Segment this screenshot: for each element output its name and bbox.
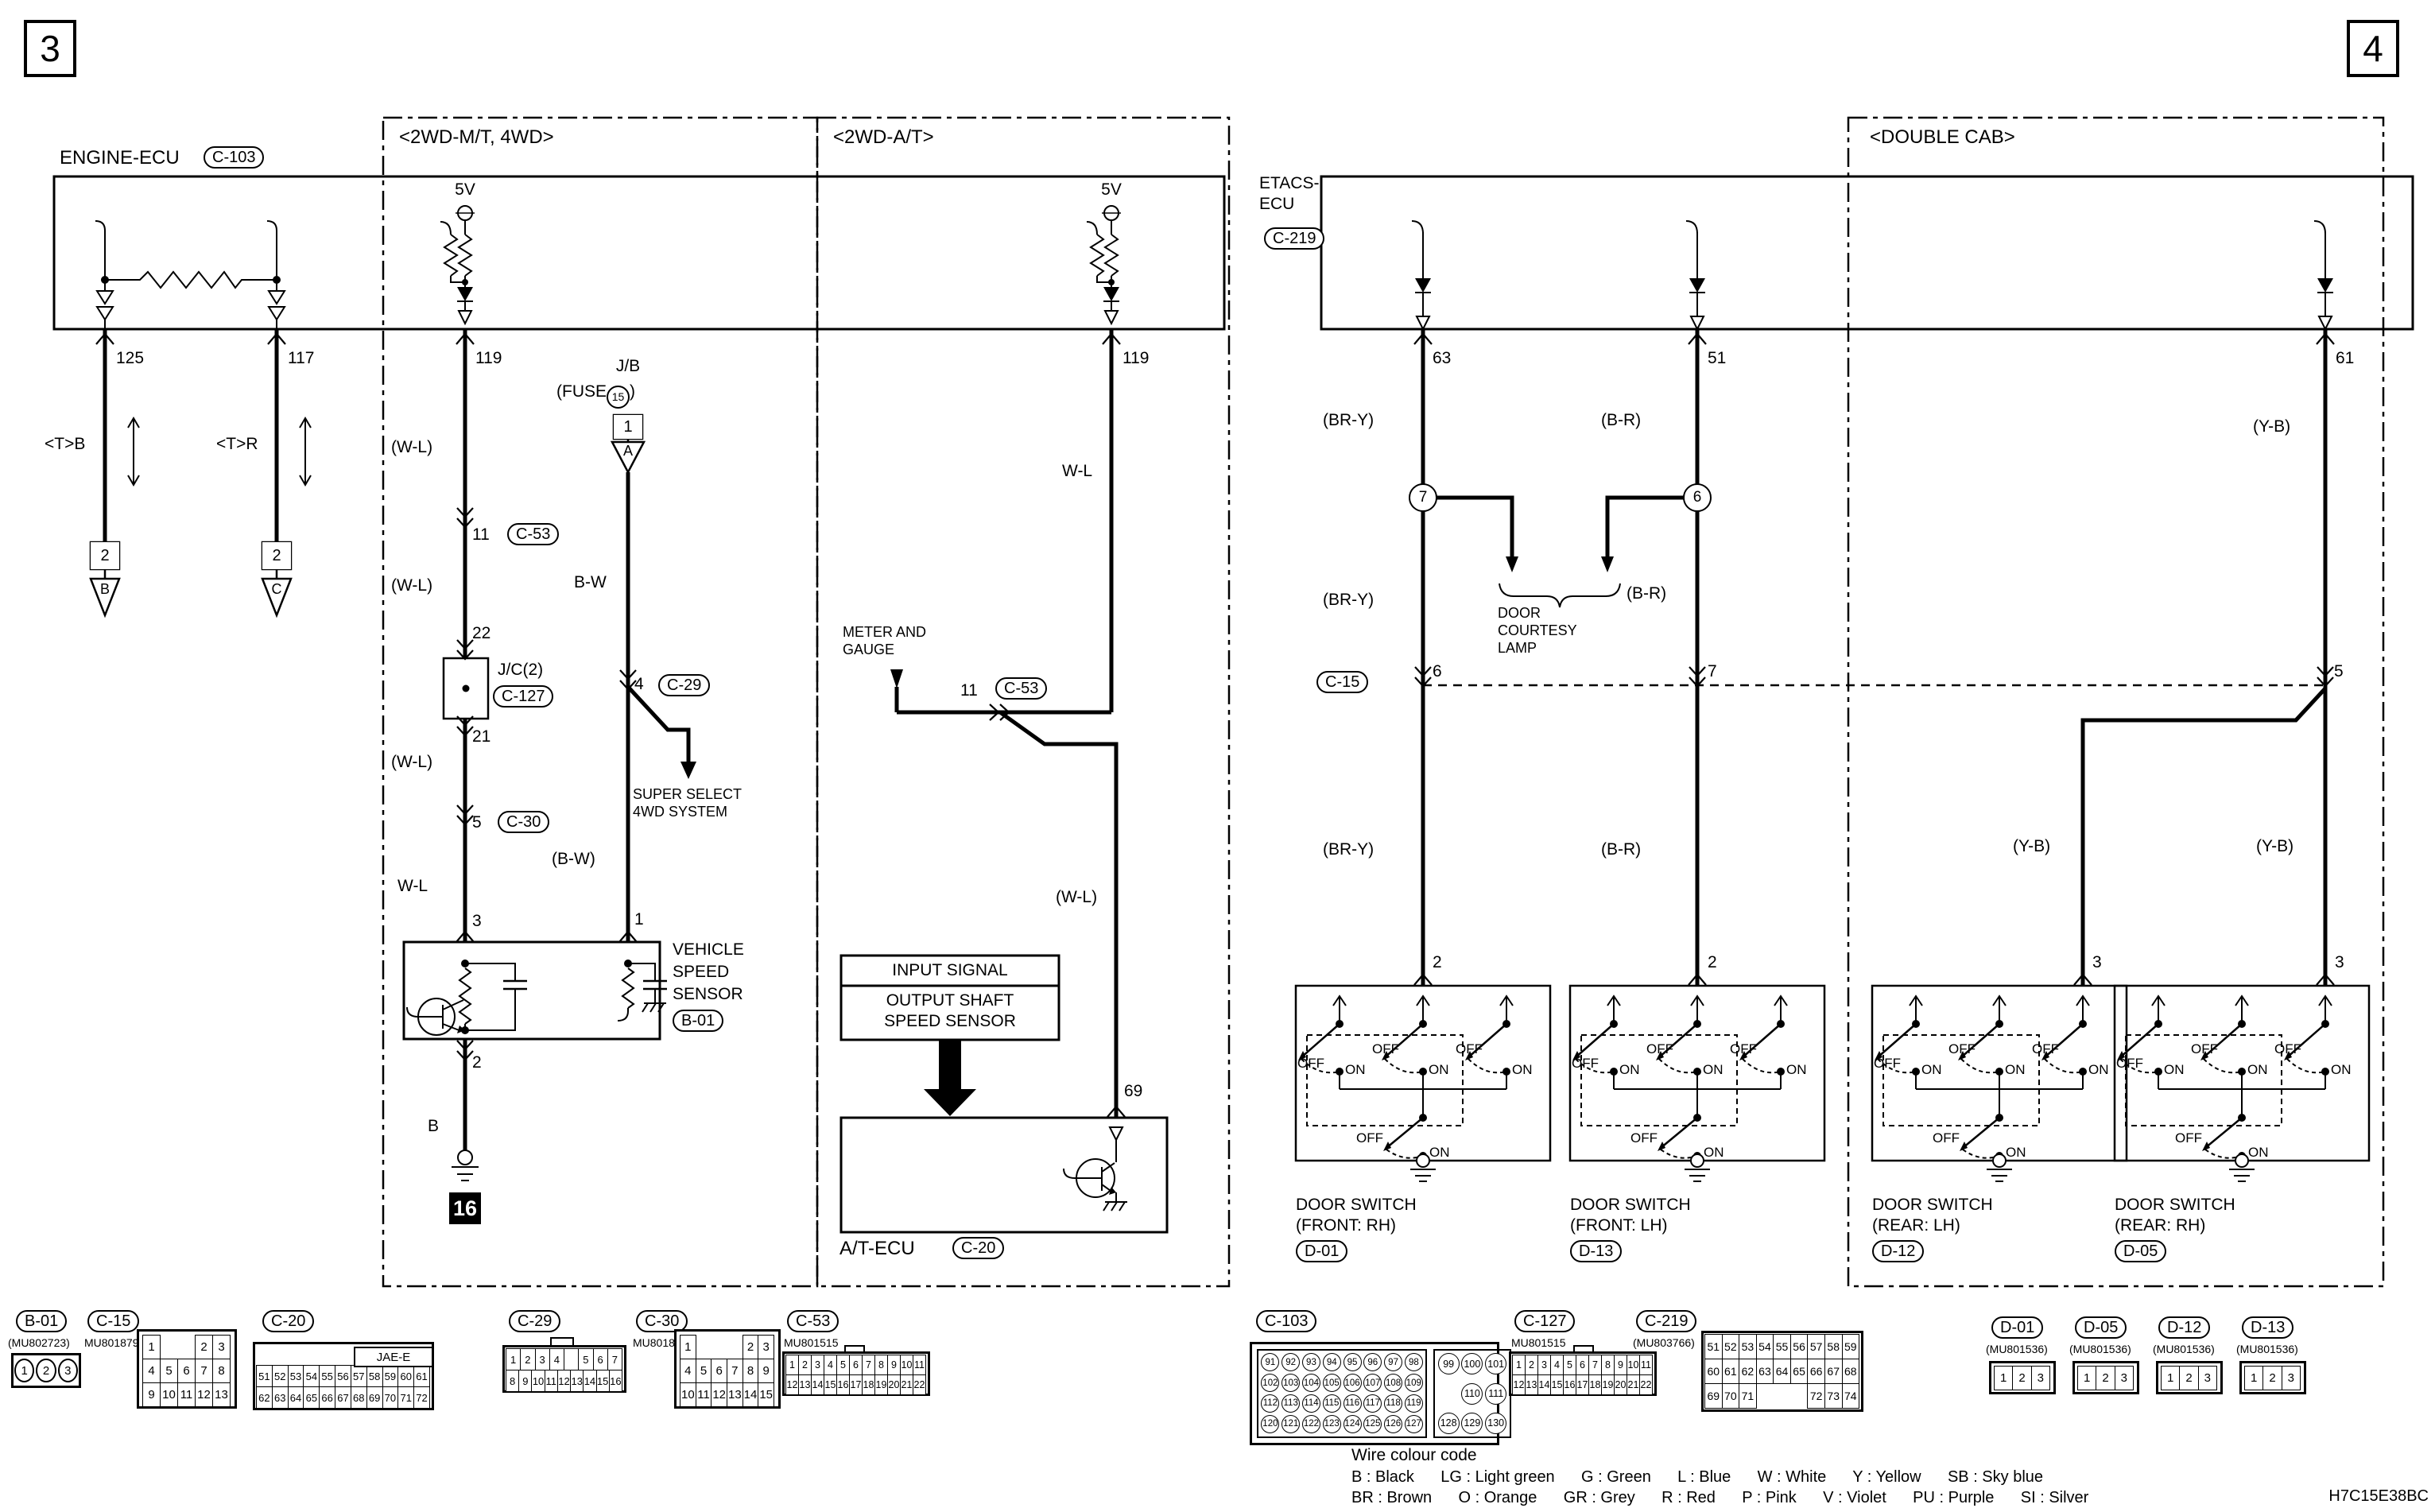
pin: 2 <box>36 1359 56 1382</box>
atecu-title: A/T-ECU <box>839 1239 915 1258</box>
pin: 117 <box>1363 1394 1382 1413</box>
pin: 71 <box>397 1386 414 1409</box>
section-at-label: <2WD-A/T> <box>833 127 934 147</box>
pin: 2 <box>743 1335 759 1359</box>
pin: 55 <box>1773 1334 1791 1359</box>
pin: 22 <box>1639 1374 1653 1395</box>
pin: 13 <box>212 1382 231 1407</box>
on-label: ON <box>1921 1062 1942 1078</box>
tr-label: <T>R <box>216 436 258 453</box>
pin: 4 <box>549 1348 564 1370</box>
input-signal-label: INPUT SIGNAL <box>892 962 1007 979</box>
conn-c127-badge: C-127 <box>1514 1310 1575 1332</box>
off-label: OFF <box>2274 1041 2301 1057</box>
jb-c29-badge: C-29 <box>658 674 710 696</box>
pin: 20 <box>887 1374 901 1395</box>
conn-d01-badge: D-01 <box>1991 1316 2043 1339</box>
on-label: ON <box>1786 1062 1807 1078</box>
pin: 4 <box>1550 1355 1564 1375</box>
pin: 108 <box>1384 1374 1402 1392</box>
pin: 5 <box>836 1355 850 1375</box>
pin: 12 <box>785 1374 799 1395</box>
lamp-label-2: COURTESY <box>1498 623 1577 638</box>
pin: 14 <box>1537 1374 1551 1395</box>
pin: 13 <box>570 1370 584 1392</box>
ds3-caption-1: DOOR SWITCH <box>1872 1196 1993 1214</box>
ds2-caption-2: (FRONT: LH) <box>1570 1217 1668 1235</box>
conn-c103-right-block: 99100101 110111 128129130 <box>1433 1349 1510 1438</box>
pin: 16 <box>609 1370 622 1392</box>
pin: 59 <box>1842 1334 1860 1359</box>
at-wl: W-L <box>1062 463 1092 480</box>
pin: 13 <box>1525 1374 1538 1395</box>
pin: 16 <box>836 1374 850 1395</box>
pin: 68 <box>1842 1359 1860 1384</box>
pin: 110 <box>1461 1383 1483 1405</box>
pin: 10 <box>680 1382 696 1407</box>
pin: 17 <box>1576 1374 1589 1395</box>
pin: 12 <box>195 1382 213 1407</box>
pin: 70 <box>1722 1383 1740 1409</box>
br-3: (B-R) <box>1601 841 1641 859</box>
legend-line-2: BR : Brown O : Orange GR : Grey R : Red … <box>1351 1490 2088 1506</box>
conn-c127-pinout: 1234567891011 1213141516171819202122 <box>1509 1351 1657 1396</box>
pin: 91 <box>1261 1353 1279 1371</box>
yb-3: (Y-B) <box>2256 838 2293 855</box>
yb-1: (Y-B) <box>2253 418 2290 436</box>
pin: 65 <box>1790 1359 1809 1384</box>
pin: 70 <box>382 1386 399 1409</box>
jb-bw-label: B-W <box>574 574 607 591</box>
pin: 6 <box>849 1355 863 1375</box>
pin: 5 <box>578 1348 593 1370</box>
etacs-title-1: ETACS- <box>1259 175 1319 192</box>
pin: 21 <box>1627 1374 1640 1395</box>
pin: 61 <box>1722 1359 1740 1384</box>
door-switch-front-lh: OFFON OFFON OFFON OFFON <box>1570 986 1824 1161</box>
pin: 72 <box>413 1386 430 1409</box>
pin: 63 <box>1756 1359 1774 1384</box>
ref-box-2c: 2 <box>262 542 291 569</box>
pin: 9 <box>758 1359 774 1383</box>
ds1-caption-2: (FRONT: RH) <box>1296 1217 1396 1235</box>
pin: 103 <box>1281 1374 1300 1392</box>
pin: 112 <box>1261 1394 1279 1413</box>
pin: 72 <box>1807 1383 1825 1409</box>
pin: 2 <box>2179 1366 2198 1390</box>
ds4-pin-3: 3 <box>2335 954 2344 971</box>
vss-b01-badge: B-01 <box>673 1010 723 1032</box>
pin: 6 <box>177 1359 196 1383</box>
pin: 67 <box>1824 1359 1843 1384</box>
conn-d13-pinout: 123 <box>2239 1361 2306 1394</box>
drawing-code: H7C15E38BC <box>2290 1488 2429 1505</box>
pin: 1 <box>506 1348 521 1370</box>
pin: 56 <box>335 1365 351 1387</box>
vss-label-2: SPEED <box>673 963 729 981</box>
pin: 4 <box>142 1359 161 1383</box>
pin: 2 <box>1525 1355 1538 1375</box>
bry-2: (BR-Y) <box>1323 591 1374 609</box>
conn-d12-badge: D-12 <box>2158 1316 2210 1339</box>
pin: 69 <box>1704 1383 1723 1409</box>
bry-3: (BR-Y) <box>1323 841 1374 859</box>
ds1-pin-2: 2 <box>1433 954 1442 971</box>
off-label: OFF <box>1456 1041 1483 1057</box>
conn-c53-part: MU801515 <box>784 1337 839 1349</box>
pin: 99 <box>1438 1353 1460 1374</box>
pin: 130 <box>1485 1413 1506 1434</box>
conn-c20-pinout: JAE-E 5152535455565758596061 62636465666… <box>253 1342 434 1410</box>
on-label: ON <box>1704 1145 1724 1161</box>
ds4-caption-1: DOOR SWITCH <box>2115 1196 2235 1214</box>
mt-wl-1: (W-L) <box>391 439 432 456</box>
tb-label: <T>B <box>45 436 85 453</box>
page-number-right: 4 <box>2347 20 2399 77</box>
pin: 21 <box>900 1374 913 1395</box>
jc-label: J/C(2) <box>498 661 543 679</box>
pin: 95 <box>1344 1353 1362 1371</box>
junction-6: 6 <box>1683 483 1712 512</box>
pin: 100 <box>1461 1353 1483 1374</box>
conn-c103-pinout: 9192939495969798 10210310410510610710810… <box>1250 1342 1499 1445</box>
conn-b01-pinout: 123 <box>11 1353 81 1388</box>
atecu-c20-badge: C-20 <box>952 1237 1004 1259</box>
pin: 6 <box>711 1359 727 1383</box>
engine-ecu-title: ENGINE-ECU <box>60 148 180 168</box>
mt-pin-5: 5 <box>472 814 482 832</box>
ds3-pin-3: 3 <box>2092 954 2102 971</box>
pin: 10 <box>160 1382 178 1407</box>
pin: 118 <box>1384 1394 1402 1413</box>
pin: 11 <box>177 1382 196 1407</box>
pin: 11 <box>545 1370 558 1392</box>
off-label: OFF <box>1730 1041 1757 1057</box>
pin: 128 <box>1438 1413 1460 1434</box>
pin: 8 <box>1601 1355 1615 1375</box>
pin: 65 <box>303 1386 320 1409</box>
door-switch-rear-lh: OFFON OFFON OFFON OFFON <box>1872 986 2127 1161</box>
engine-ecu-connector-badge: C-103 <box>204 146 264 169</box>
off-label: OFF <box>1874 1056 1901 1072</box>
pin: 122 <box>1302 1415 1320 1433</box>
mt-pin-11: 11 <box>472 526 490 544</box>
pin: 14 <box>743 1382 759 1407</box>
pin: 111 <box>1485 1383 1506 1405</box>
jc-c127-badge: C-127 <box>493 685 553 708</box>
mt-wl-2: (W-L) <box>391 577 432 595</box>
pin: 19 <box>874 1374 888 1395</box>
pin: 3 <box>212 1335 231 1359</box>
pin: 2 <box>195 1335 213 1359</box>
mt-b-label: B <box>428 1118 439 1135</box>
pin: 129 <box>1461 1413 1483 1434</box>
pin: 74 <box>1842 1383 1860 1409</box>
output-shaft-label-2: SPEED SENSOR <box>884 1013 1016 1030</box>
etacs-title-2: ECU <box>1259 196 1294 213</box>
pin: 55 <box>319 1365 335 1387</box>
ds1-badge: D-01 <box>1296 1240 1347 1262</box>
pin: 68 <box>351 1386 367 1409</box>
pin: 101 <box>1485 1353 1506 1374</box>
pin: 1 <box>14 1359 34 1382</box>
pin: 92 <box>1281 1353 1300 1371</box>
ds2-pin-2: 2 <box>1708 954 1717 971</box>
pin: 3 <box>58 1359 78 1382</box>
super-select-1: SUPER SELECT <box>633 787 742 802</box>
pin: 7 <box>727 1359 743 1383</box>
pin: 3 <box>535 1348 550 1370</box>
lamp-label-3: LAMP <box>1498 641 1537 656</box>
on-label: ON <box>2247 1062 2268 1078</box>
pin: 13 <box>727 1382 743 1407</box>
pin-125: 125 <box>116 350 144 367</box>
conn-d12-part: (MU801536) <box>2153 1343 2215 1355</box>
conn-c219-badge: C-219 <box>1636 1310 1696 1332</box>
off-label: OFF <box>2116 1056 2143 1072</box>
output-shaft-label-1: OUTPUT SHAFT <box>886 992 1014 1010</box>
pin: 7 <box>607 1348 622 1370</box>
br-1: (B-R) <box>1601 412 1641 429</box>
pin: 6 <box>1576 1355 1589 1375</box>
pin: 94 <box>1323 1353 1341 1371</box>
pin: 73 <box>1824 1383 1843 1409</box>
conn-d05-part: (MU801536) <box>2069 1343 2131 1355</box>
conn-c15-part: MU801879 <box>84 1337 139 1349</box>
ds3-badge: D-12 <box>1872 1240 1924 1262</box>
pin: 52 <box>272 1365 289 1387</box>
pin: 102 <box>1261 1374 1279 1392</box>
mt-5v-label: 5V <box>455 181 475 199</box>
pin: 11 <box>696 1382 712 1407</box>
conn-c30-pinout: 123 456789 101112131415 <box>674 1329 781 1409</box>
pin: 7 <box>862 1355 875 1375</box>
pin: 51 <box>256 1365 273 1387</box>
pin: 64 <box>288 1386 304 1409</box>
conn-d13-badge: D-13 <box>2242 1316 2293 1339</box>
fuse-post: ) <box>630 382 635 401</box>
pin: 3 <box>811 1355 824 1375</box>
pin: 1 <box>785 1355 799 1375</box>
pin: 120 <box>1261 1415 1279 1433</box>
pin: 93 <box>1302 1353 1320 1371</box>
pin: 2 <box>2262 1366 2282 1390</box>
off-label: OFF <box>1356 1130 1383 1146</box>
pin: 11 <box>1639 1355 1653 1375</box>
pin: 121 <box>1281 1415 1300 1433</box>
pin: 97 <box>1384 1353 1402 1371</box>
yb-2: (Y-B) <box>2013 838 2050 855</box>
pin: 9 <box>142 1382 161 1407</box>
ds3-caption-2: (REAR: LH) <box>1872 1217 1960 1235</box>
pin: 62 <box>1739 1359 1757 1384</box>
on-label: ON <box>2331 1062 2352 1078</box>
conn-c53-pinout: 1234567891011 1213141516171819202122 <box>782 1351 930 1396</box>
jb-fuse-label: (FUSE15) <box>556 383 635 409</box>
pin: 13 <box>798 1374 812 1395</box>
pin: 3 <box>2282 1366 2301 1390</box>
door-switch-rear-rh: OFFON OFFON OFFON OFFON <box>2115 986 2369 1161</box>
off-label: OFF <box>1948 1041 1976 1057</box>
pin: 15 <box>758 1382 774 1407</box>
on-label: ON <box>2088 1062 2109 1078</box>
off-label: OFF <box>1630 1130 1658 1146</box>
ds4-badge: D-05 <box>2115 1240 2166 1262</box>
pin: 64 <box>1773 1359 1791 1384</box>
jb-label: J/B <box>616 358 640 375</box>
super-select-2: 4WD SYSTEM <box>633 804 727 820</box>
lamp-label-1: DOOR <box>1498 606 1541 621</box>
pin: 3 <box>1537 1355 1551 1375</box>
pin-117: 117 <box>288 350 314 367</box>
pin: 58 <box>366 1365 383 1387</box>
junction-7: 7 <box>1409 483 1437 512</box>
pin: 2 <box>520 1348 535 1370</box>
pin: 54 <box>1756 1334 1774 1359</box>
pin: 7 <box>1588 1355 1602 1375</box>
meter-label-1: METER AND <box>843 625 926 640</box>
pin: 51 <box>1704 1334 1723 1359</box>
ds2-badge: D-13 <box>1570 1240 1622 1262</box>
pin: 1 <box>2077 1366 2096 1390</box>
at-pin-119: 119 <box>1123 350 1149 367</box>
pin: 9 <box>887 1355 901 1375</box>
on-label: ON <box>2005 1062 2026 1078</box>
pin: 3 <box>758 1335 774 1359</box>
pin: 53 <box>1739 1334 1757 1359</box>
fuse-pre: (FUSE <box>556 382 607 401</box>
pin: 116 <box>1344 1394 1362 1413</box>
pin: 3 <box>2031 1366 2050 1390</box>
conn-c127-part: MU801515 <box>1511 1337 1566 1349</box>
legend-line-1: B : Black LG : Light green G : Green L :… <box>1351 1469 2043 1486</box>
pin: 8 <box>743 1359 759 1383</box>
mt-wl-3: (W-L) <box>391 754 432 771</box>
on-label: ON <box>2006 1145 2026 1161</box>
pin: 11 <box>913 1355 926 1375</box>
on-label: ON <box>1703 1062 1723 1078</box>
pin: 20 <box>1614 1374 1627 1395</box>
pin: 9 <box>518 1370 532 1392</box>
on-label: ON <box>1345 1062 1366 1078</box>
pin <box>564 1348 579 1370</box>
pin: 19 <box>1601 1374 1615 1395</box>
pin: 15 <box>824 1374 837 1395</box>
pin: 113 <box>1281 1394 1300 1413</box>
pin: 123 <box>1323 1415 1341 1433</box>
pin: 6 <box>593 1348 608 1370</box>
pin: 69 <box>366 1386 383 1409</box>
section-mt-label: <2WD-M/T, 4WD> <box>399 127 554 147</box>
conn-c219-pinout: 515253545556575859 606162636465666768 69… <box>1701 1331 1863 1412</box>
pin: 119 <box>1405 1394 1423 1413</box>
bry-1: (BR-Y) <box>1323 412 1374 429</box>
conn-d01-part: (MU801536) <box>1986 1343 2048 1355</box>
conn-c103-badge: C-103 <box>1256 1310 1316 1332</box>
pin: 67 <box>335 1386 351 1409</box>
vss-label-1: VEHICLE <box>673 941 744 959</box>
pin: 2 <box>2012 1366 2031 1390</box>
pin: 9 <box>1614 1355 1627 1375</box>
c15-pin-6: 6 <box>1433 663 1442 680</box>
pin: 106 <box>1344 1374 1362 1392</box>
wiring-diagram-page: { "page": {"left_num":"3","right_num":"4… <box>0 0 2435 1512</box>
conn-c20-series-label: JAE-E <box>354 1347 433 1367</box>
off-label: OFF <box>1372 1041 1399 1057</box>
pin: 18 <box>862 1374 875 1395</box>
on-label: ON <box>1619 1062 1640 1078</box>
conn-b01-badge: B-01 <box>16 1310 67 1332</box>
conn-b01-part: (MU802723) <box>8 1337 70 1349</box>
ecu-internal-125-117 <box>95 221 285 329</box>
on-label: ON <box>2164 1062 2185 1078</box>
conn-c219-part: (MU803766) <box>1633 1337 1695 1349</box>
mt-c53-badge: C-53 <box>507 523 559 545</box>
lamp-brace <box>1499 583 1620 607</box>
at-c53-badge: C-53 <box>995 677 1047 700</box>
mt-pin-119: 119 <box>475 350 502 367</box>
pin: 4 <box>824 1355 837 1375</box>
pin: 8 <box>506 1370 519 1392</box>
pin: 96 <box>1363 1353 1382 1371</box>
pin: 10 <box>531 1370 545 1392</box>
pin: 8 <box>212 1359 231 1383</box>
pin: 5 <box>160 1359 178 1383</box>
pin: 16 <box>1563 1374 1576 1395</box>
pin: 14 <box>583 1370 596 1392</box>
off-label: OFF <box>1572 1056 1599 1072</box>
off-label: OFF <box>2032 1041 2059 1057</box>
pin: 14 <box>811 1374 824 1395</box>
pin: 60 <box>397 1365 414 1387</box>
pin: 22 <box>913 1374 926 1395</box>
ds4-caption-2: (REAR: RH) <box>2115 1217 2205 1235</box>
etacs-connector-badge: C-219 <box>1264 227 1324 250</box>
pin: 58 <box>1824 1334 1843 1359</box>
legend-title: Wire colour code <box>1351 1447 1477 1464</box>
pin: 54 <box>303 1365 320 1387</box>
conn-d13-part: (MU801536) <box>2236 1343 2298 1355</box>
pin: 59 <box>382 1365 399 1387</box>
conn-d12-pinout: 123 <box>2156 1361 2223 1394</box>
c15-pin-7: 7 <box>1708 663 1717 680</box>
jb-pin-1: 1 <box>634 911 644 929</box>
off-label: OFF <box>2175 1130 2202 1146</box>
on-label: ON <box>1429 1062 1449 1078</box>
page-number-left: 3 <box>24 20 76 77</box>
pin: 125 <box>1363 1415 1382 1433</box>
off-label: OFF <box>1933 1130 1960 1146</box>
conn-d01-pinout: 123 <box>1989 1361 2056 1394</box>
on-label: ON <box>2248 1145 2269 1161</box>
mt-pin-3: 3 <box>472 913 482 930</box>
pin: 2 <box>2096 1366 2115 1390</box>
vss-internals <box>407 960 667 1035</box>
conn-c15-badge: C-15 <box>87 1310 139 1332</box>
tri-c-label: C <box>272 582 282 597</box>
mt-wl-4: W-L <box>397 878 428 895</box>
pin: 127 <box>1405 1415 1423 1433</box>
pin: 56 <box>1790 1334 1809 1359</box>
pin: 104 <box>1302 1374 1320 1392</box>
pin: 52 <box>1722 1334 1740 1359</box>
pin: 126 <box>1384 1415 1402 1433</box>
pin: 71 <box>1739 1383 1757 1409</box>
pin: 124 <box>1344 1415 1362 1433</box>
pin: 114 <box>1302 1394 1320 1413</box>
pin: 1 <box>2161 1366 2180 1390</box>
pin: 61 <box>413 1365 430 1387</box>
